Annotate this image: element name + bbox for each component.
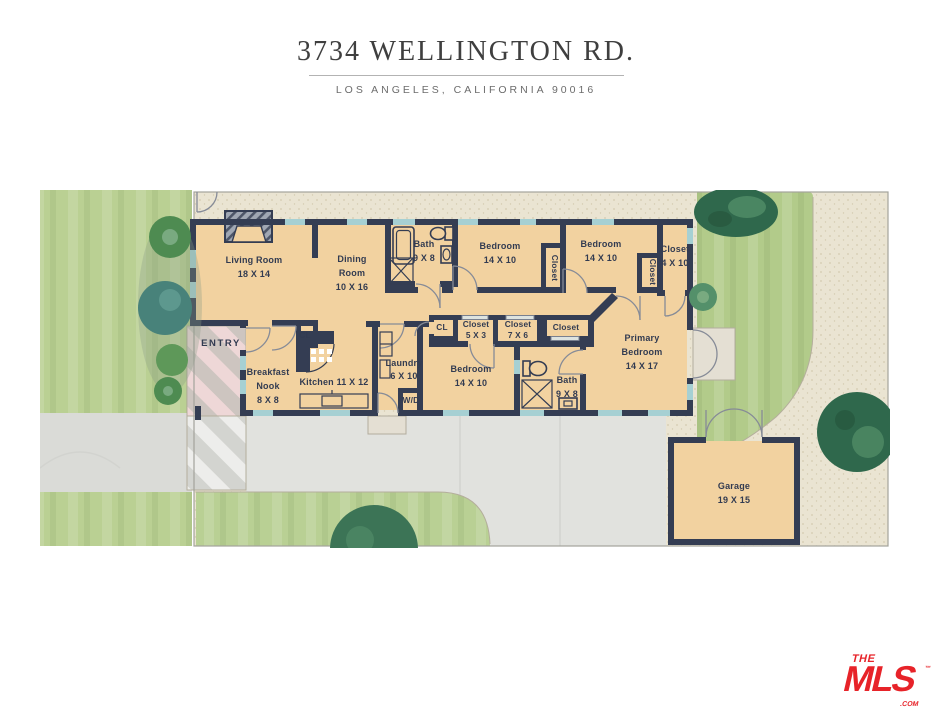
primary-patio: [693, 328, 735, 380]
bedroom3-label: Bedroom: [451, 364, 492, 374]
title-divider: [309, 75, 624, 76]
breakfast-nook-label-2: Nook: [256, 381, 280, 391]
primary-bedroom-label-2: Bedroom: [622, 347, 663, 357]
closet2-label: Closet: [648, 259, 658, 286]
breakfast-nook-dims: 8 X 8: [257, 395, 279, 405]
mls-logo-mls: MLS: [841, 664, 926, 694]
garage-label: Garage: [718, 481, 750, 491]
mls-logo-com: .COM: [899, 701, 919, 708]
page: { "header": { "title": "3734 WELLINGTON …: [0, 0, 932, 720]
garage-dims: 19 X 15: [718, 495, 750, 505]
kitchen-label: Kitchen 11 X 12: [299, 377, 368, 387]
living-room-dims: 18 X 14: [238, 269, 270, 279]
bedroom1-label: Bedroom: [480, 241, 521, 251]
hall-closet-label: CL: [436, 322, 447, 332]
page-subtitle: LOS ANGELES, CALIFORNIA 90016: [0, 84, 932, 96]
dining-room-label-1: Dining: [337, 254, 366, 264]
wd-label: W/D: [403, 395, 420, 405]
mls-logo: THE MLS .COM ™: [838, 654, 928, 706]
dining-room-dims: 10 X 16: [336, 282, 368, 292]
bedroom3-dims: 14 X 10: [455, 378, 487, 388]
closet53-dims: 5 X 3: [466, 330, 487, 340]
rear-stoop: [368, 416, 406, 434]
entry-label: ENTRY: [201, 338, 241, 349]
bath2-dims: 9 X 8: [556, 389, 578, 399]
kitchen-closet-label: CL: [299, 330, 310, 340]
bedroom1-dims: 14 X 10: [484, 255, 516, 265]
closet53-label: Closet: [463, 319, 490, 329]
breakfast-nook-label-1: Breakfast: [247, 367, 290, 377]
fireplace: [225, 211, 272, 242]
bath1-dims: 9 X 8: [413, 253, 435, 263]
bath1-label: Bath: [414, 239, 435, 249]
mls-logo-tm: ™: [924, 666, 931, 672]
closet410-dims: 4 X 10: [661, 258, 688, 268]
header: 3734 WELLINGTON RD. LOS ANGELES, CALIFOR…: [0, 36, 932, 96]
closet-plain-label: Closet: [553, 322, 580, 332]
primary-bedroom-dims: 14 X 17: [626, 361, 658, 371]
closet76-dims: 7 X 6: [508, 330, 529, 340]
street-sidewalk: [40, 413, 192, 492]
bedroom2-dims: 14 X 10: [585, 253, 617, 263]
tree-small-highlight: [697, 291, 709, 303]
primary-bedroom-label-1: Primary: [625, 333, 660, 343]
closet1-label: Closet: [550, 255, 560, 282]
page-title: 3734 WELLINGTON RD.: [0, 36, 932, 68]
bath2-label: Bath: [557, 375, 578, 385]
laundry-dims: 6 X 10: [390, 371, 417, 381]
front-walkway: [187, 416, 246, 490]
floor-plan: Living Room 18 X 14 Dining Room 10 X 16 …: [40, 190, 890, 548]
living-room-label: Living Room: [226, 255, 283, 265]
dining-room-label-2: Room: [339, 268, 365, 278]
laundry-label: Laundry: [386, 358, 423, 368]
closet410-label: Closet: [661, 244, 690, 254]
bedroom2-label: Bedroom: [581, 239, 622, 249]
closet76-label: Closet: [505, 319, 532, 329]
